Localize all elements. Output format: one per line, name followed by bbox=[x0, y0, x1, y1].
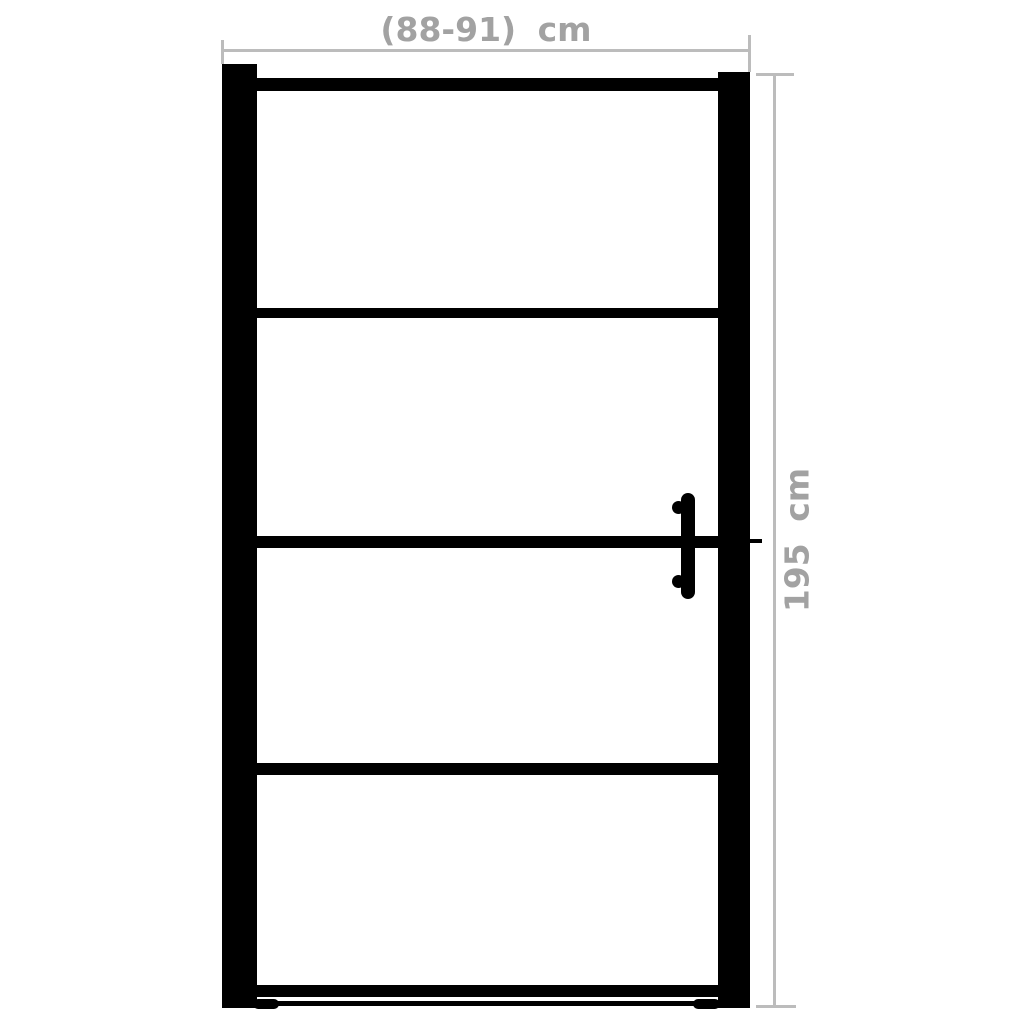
door-crossbar-1 bbox=[255, 308, 720, 318]
width-dimension-line bbox=[222, 49, 750, 52]
width-dimension-right-tick bbox=[748, 35, 751, 72]
height-dimension-top-tick bbox=[756, 73, 794, 76]
door-left-foot bbox=[253, 999, 279, 1009]
door-top-rail bbox=[255, 78, 720, 91]
door-crossbar-2 bbox=[255, 536, 750, 548]
door-latch-mark bbox=[750, 539, 762, 543]
width-dimension-left-tick bbox=[221, 40, 224, 64]
product-dimension-diagram: (88-91) cm 195 cm bbox=[0, 0, 1024, 1024]
door-right-foot bbox=[693, 999, 720, 1009]
door-bottom-seal-strip bbox=[244, 1001, 750, 1006]
height-dimension-label: 195 cm bbox=[781, 468, 814, 612]
width-dimension-label: (88-91) cm bbox=[222, 13, 750, 46]
handle-grip-bar bbox=[681, 493, 695, 599]
door-bottom-rail bbox=[248, 985, 747, 997]
height-dimension-line bbox=[773, 73, 776, 1007]
door-left-frame-post bbox=[222, 64, 257, 1008]
door-crossbar-3 bbox=[255, 763, 720, 775]
height-dimension-bottom-tick bbox=[756, 1005, 796, 1008]
